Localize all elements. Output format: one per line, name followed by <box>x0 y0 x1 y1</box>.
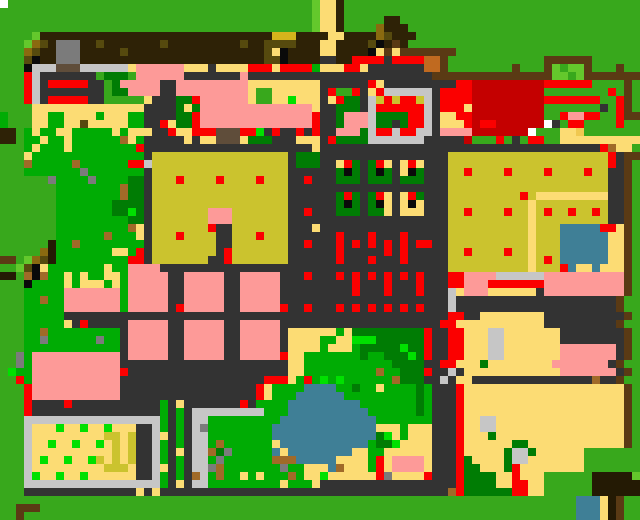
game-map-canvas[interactable] <box>0 0 640 520</box>
pixel-town-map <box>0 0 640 520</box>
